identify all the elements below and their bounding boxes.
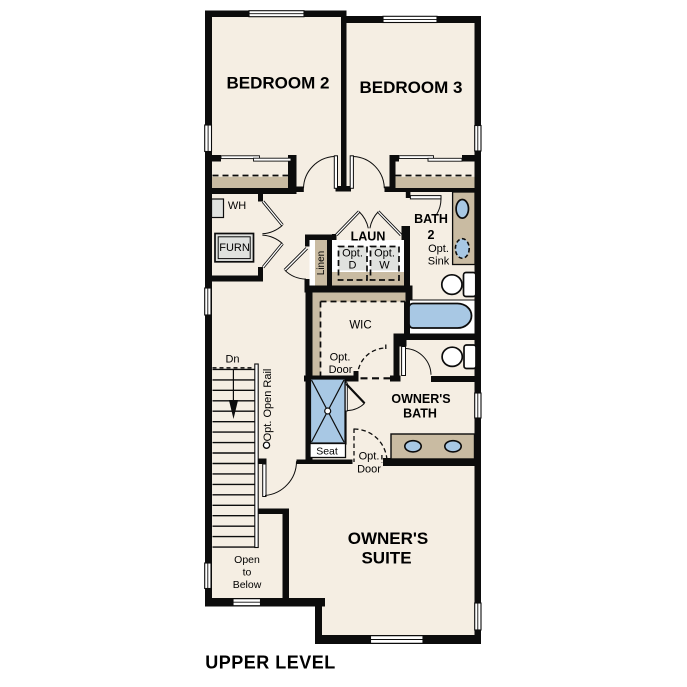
svg-text:W: W: [379, 260, 390, 272]
svg-text:FURN: FURN: [219, 242, 250, 254]
svg-text:D: D: [349, 260, 357, 272]
svg-text:WH: WH: [228, 200, 246, 212]
svg-text:Door: Door: [329, 364, 353, 376]
svg-text:Opt. Open Rail: Opt. Open Rail: [262, 369, 274, 442]
svg-text:BATH: BATH: [414, 212, 448, 226]
svg-text:Opt.: Opt.: [330, 352, 351, 364]
svg-text:BEDROOM 2: BEDROOM 2: [227, 74, 330, 93]
svg-text:Opt.: Opt.: [428, 243, 449, 255]
svg-text:Opt.: Opt.: [342, 248, 363, 260]
svg-text:Below: Below: [233, 579, 262, 591]
svg-text:Door: Door: [357, 464, 381, 476]
svg-text:Open: Open: [234, 554, 260, 566]
svg-text:to: to: [243, 567, 252, 579]
svg-text:Opt.: Opt.: [374, 248, 395, 260]
svg-text:SUITE: SUITE: [361, 549, 411, 568]
svg-text:Seat: Seat: [316, 446, 338, 458]
svg-text:LAUN: LAUN: [351, 230, 386, 244]
svg-text:UPPER LEVEL: UPPER LEVEL: [205, 653, 336, 673]
svg-text:WIC: WIC: [349, 320, 371, 332]
svg-text:2: 2: [428, 228, 435, 242]
svg-text:BEDROOM 3: BEDROOM 3: [360, 78, 463, 97]
svg-text:OWNER'S: OWNER'S: [348, 529, 429, 548]
svg-text:Opt.: Opt.: [359, 451, 380, 463]
svg-text:OWNER'S: OWNER'S: [391, 392, 450, 406]
svg-text:BATH: BATH: [403, 407, 437, 421]
svg-text:Dn: Dn: [225, 354, 239, 366]
svg-text:Sink: Sink: [428, 256, 450, 268]
svg-text:Linen: Linen: [316, 251, 327, 275]
